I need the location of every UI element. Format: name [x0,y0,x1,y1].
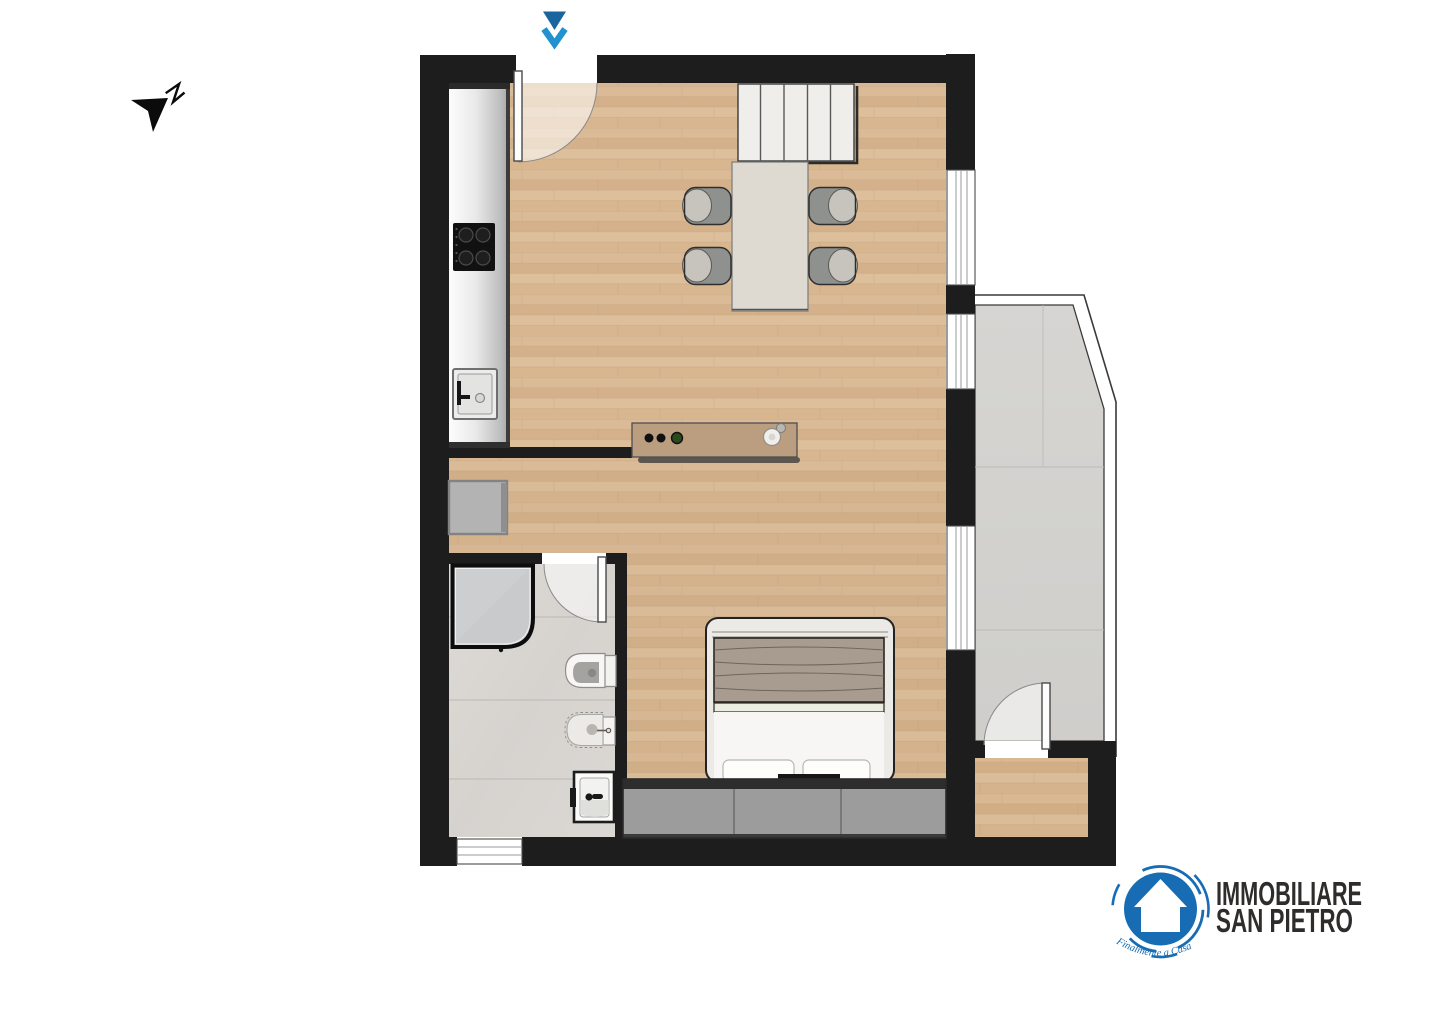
svg-text:SAN PIETRO: SAN PIETRO [1216,902,1353,939]
